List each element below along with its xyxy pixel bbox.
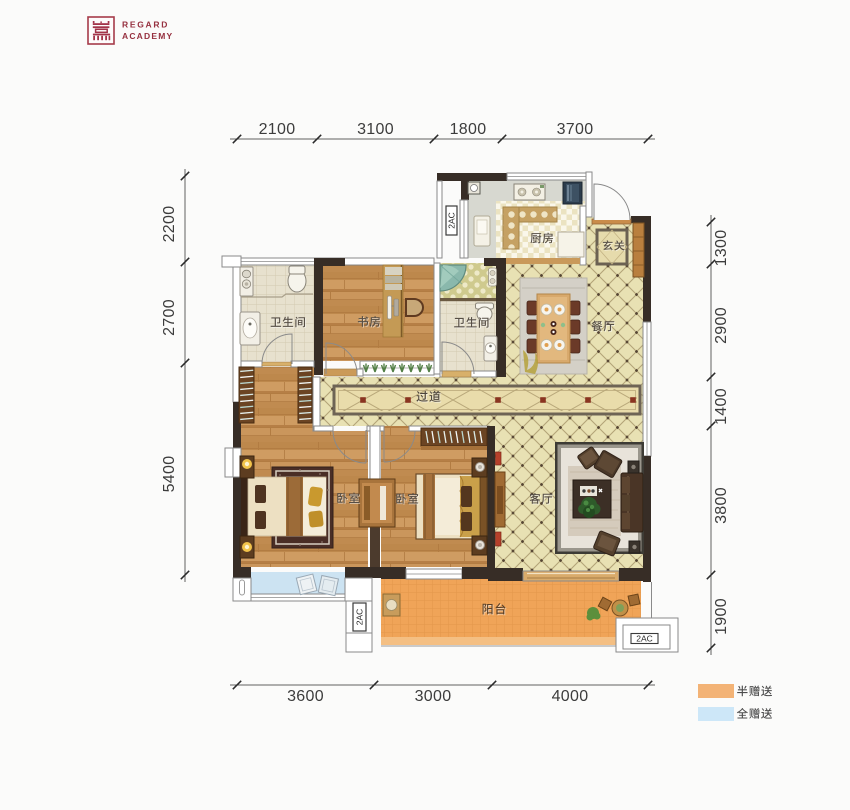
svg-text:3100: 3100 bbox=[357, 121, 394, 138]
svg-text:5400: 5400 bbox=[161, 456, 178, 493]
svg-text:3000: 3000 bbox=[415, 688, 452, 705]
svg-text:2AC: 2AC bbox=[447, 212, 457, 229]
svg-text:4000: 4000 bbox=[552, 688, 589, 705]
svg-text:3600: 3600 bbox=[287, 688, 324, 705]
svg-text:2100: 2100 bbox=[259, 121, 296, 138]
svg-text:ACADEMY: ACADEMY bbox=[122, 31, 173, 41]
svg-text:3800: 3800 bbox=[713, 487, 730, 524]
svg-text:1300: 1300 bbox=[713, 230, 730, 267]
svg-text:1900: 1900 bbox=[713, 598, 730, 635]
svg-text:2700: 2700 bbox=[161, 299, 178, 336]
svg-text:1800: 1800 bbox=[450, 121, 487, 138]
svg-text:2200: 2200 bbox=[161, 206, 178, 243]
svg-text:2AC: 2AC bbox=[355, 609, 365, 626]
svg-text:3700: 3700 bbox=[557, 121, 594, 138]
svg-text:2900: 2900 bbox=[713, 307, 730, 344]
svg-text:REGARD: REGARD bbox=[122, 20, 169, 30]
svg-text:2AC: 2AC bbox=[636, 634, 653, 644]
svg-text:1400: 1400 bbox=[713, 388, 730, 425]
